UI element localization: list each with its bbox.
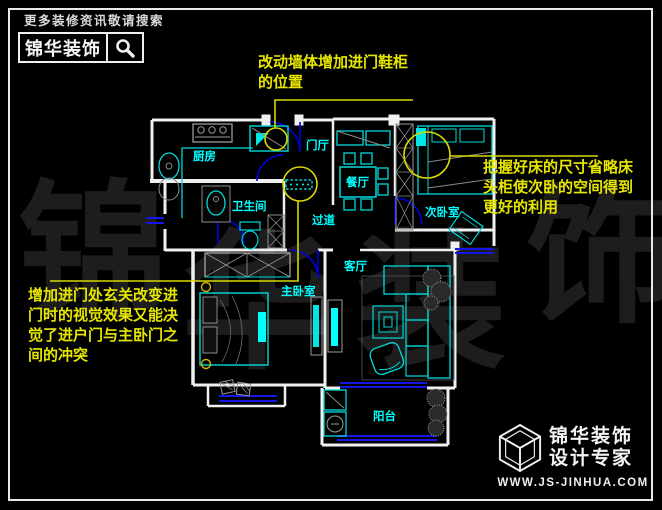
footer-logo: 锦华装饰 设计专家 WWW.JS-JINHUA.COM bbox=[497, 423, 649, 489]
highlight-circle-shoe-cabinet bbox=[265, 128, 287, 150]
proposed-entry-cabinet bbox=[286, 180, 312, 189]
room-label-corridor: 过道 bbox=[312, 213, 335, 227]
dining-furniture bbox=[337, 131, 390, 210]
floorplan-page: 锦 华 装 饰 bbox=[0, 0, 662, 510]
brand-name: 锦华装饰 bbox=[20, 34, 106, 61]
annotation-top: 改动墙体增加进门鞋柜 的位置 bbox=[258, 53, 408, 93]
room-label-bedroom1: 主卧室 bbox=[281, 284, 316, 298]
cube-logo-icon bbox=[497, 423, 543, 473]
door-arc-master bbox=[290, 250, 318, 278]
room-label-foyer: 门厅 bbox=[306, 138, 329, 152]
search-icon bbox=[114, 37, 136, 59]
annotation-line: 增加进门处玄关改变进 bbox=[28, 286, 178, 306]
annotation-line: 把握好床的尺寸省略床 bbox=[483, 158, 633, 178]
room-label-bedroom2: 次卧室 bbox=[425, 205, 460, 219]
living-furniture bbox=[328, 266, 454, 380]
brand-search-box: 锦华装饰 bbox=[18, 32, 144, 63]
footer-tagline: 设计专家 bbox=[549, 448, 633, 470]
room-label-living: 客厅 bbox=[343, 259, 367, 273]
annotation-line: 改动墙体增加进门鞋柜 bbox=[258, 53, 408, 73]
bedroom2-furniture bbox=[396, 124, 492, 244]
search-button bbox=[106, 34, 142, 61]
annotation-line: 头柜使次卧的空间得到 bbox=[483, 178, 633, 198]
search-hint-text: 更多装修资讯敬请搜索 bbox=[24, 10, 164, 29]
annotation-right: 把握好床的尺寸省略床 头柜使次卧的空间得到 更好的利用 bbox=[483, 158, 633, 218]
room-label-dining: 餐厅 bbox=[345, 175, 369, 189]
room-label-balcony: 阳台 bbox=[373, 409, 396, 423]
door-arc-kitchen bbox=[257, 155, 283, 181]
annotation-line: 的位置 bbox=[258, 73, 408, 93]
annotation-line: 间的冲突 bbox=[28, 346, 178, 366]
annotation-line: 更好的利用 bbox=[483, 198, 633, 218]
footer-brand: 锦华装饰 bbox=[549, 426, 633, 448]
master-furniture bbox=[200, 253, 322, 369]
room-label-kitchen: 厨房 bbox=[193, 149, 216, 163]
highlight-circle-bed bbox=[404, 132, 450, 178]
highlight-circle-entry bbox=[283, 167, 317, 201]
annotation-line: 门时的视觉效果又能决 bbox=[28, 306, 178, 326]
room-label-bathroom: 卫生间 bbox=[232, 199, 267, 213]
annotation-line: 觉了进户门与主卧门之 bbox=[28, 326, 178, 346]
annotation-left: 增加进门处玄关改变进 门时的视觉效果又能决 觉了进户门与主卧门之 间的冲突 bbox=[28, 286, 178, 366]
footer-url: WWW.JS-JINHUA.COM bbox=[497, 477, 649, 489]
